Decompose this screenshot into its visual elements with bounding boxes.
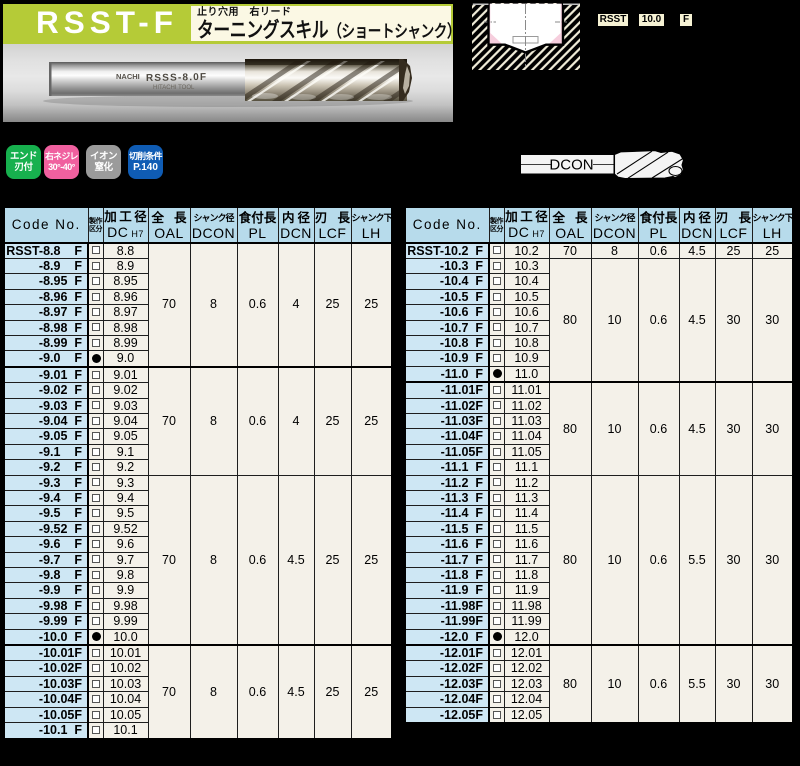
svg-text:RSSS-8.0F: RSSS-8.0F xyxy=(146,72,208,84)
svg-text:NACHI: NACHI xyxy=(116,72,140,81)
svg-text:HITACHI TOOL: HITACHI TOOL xyxy=(153,85,195,91)
svg-text:DCON: DCON xyxy=(549,156,593,173)
